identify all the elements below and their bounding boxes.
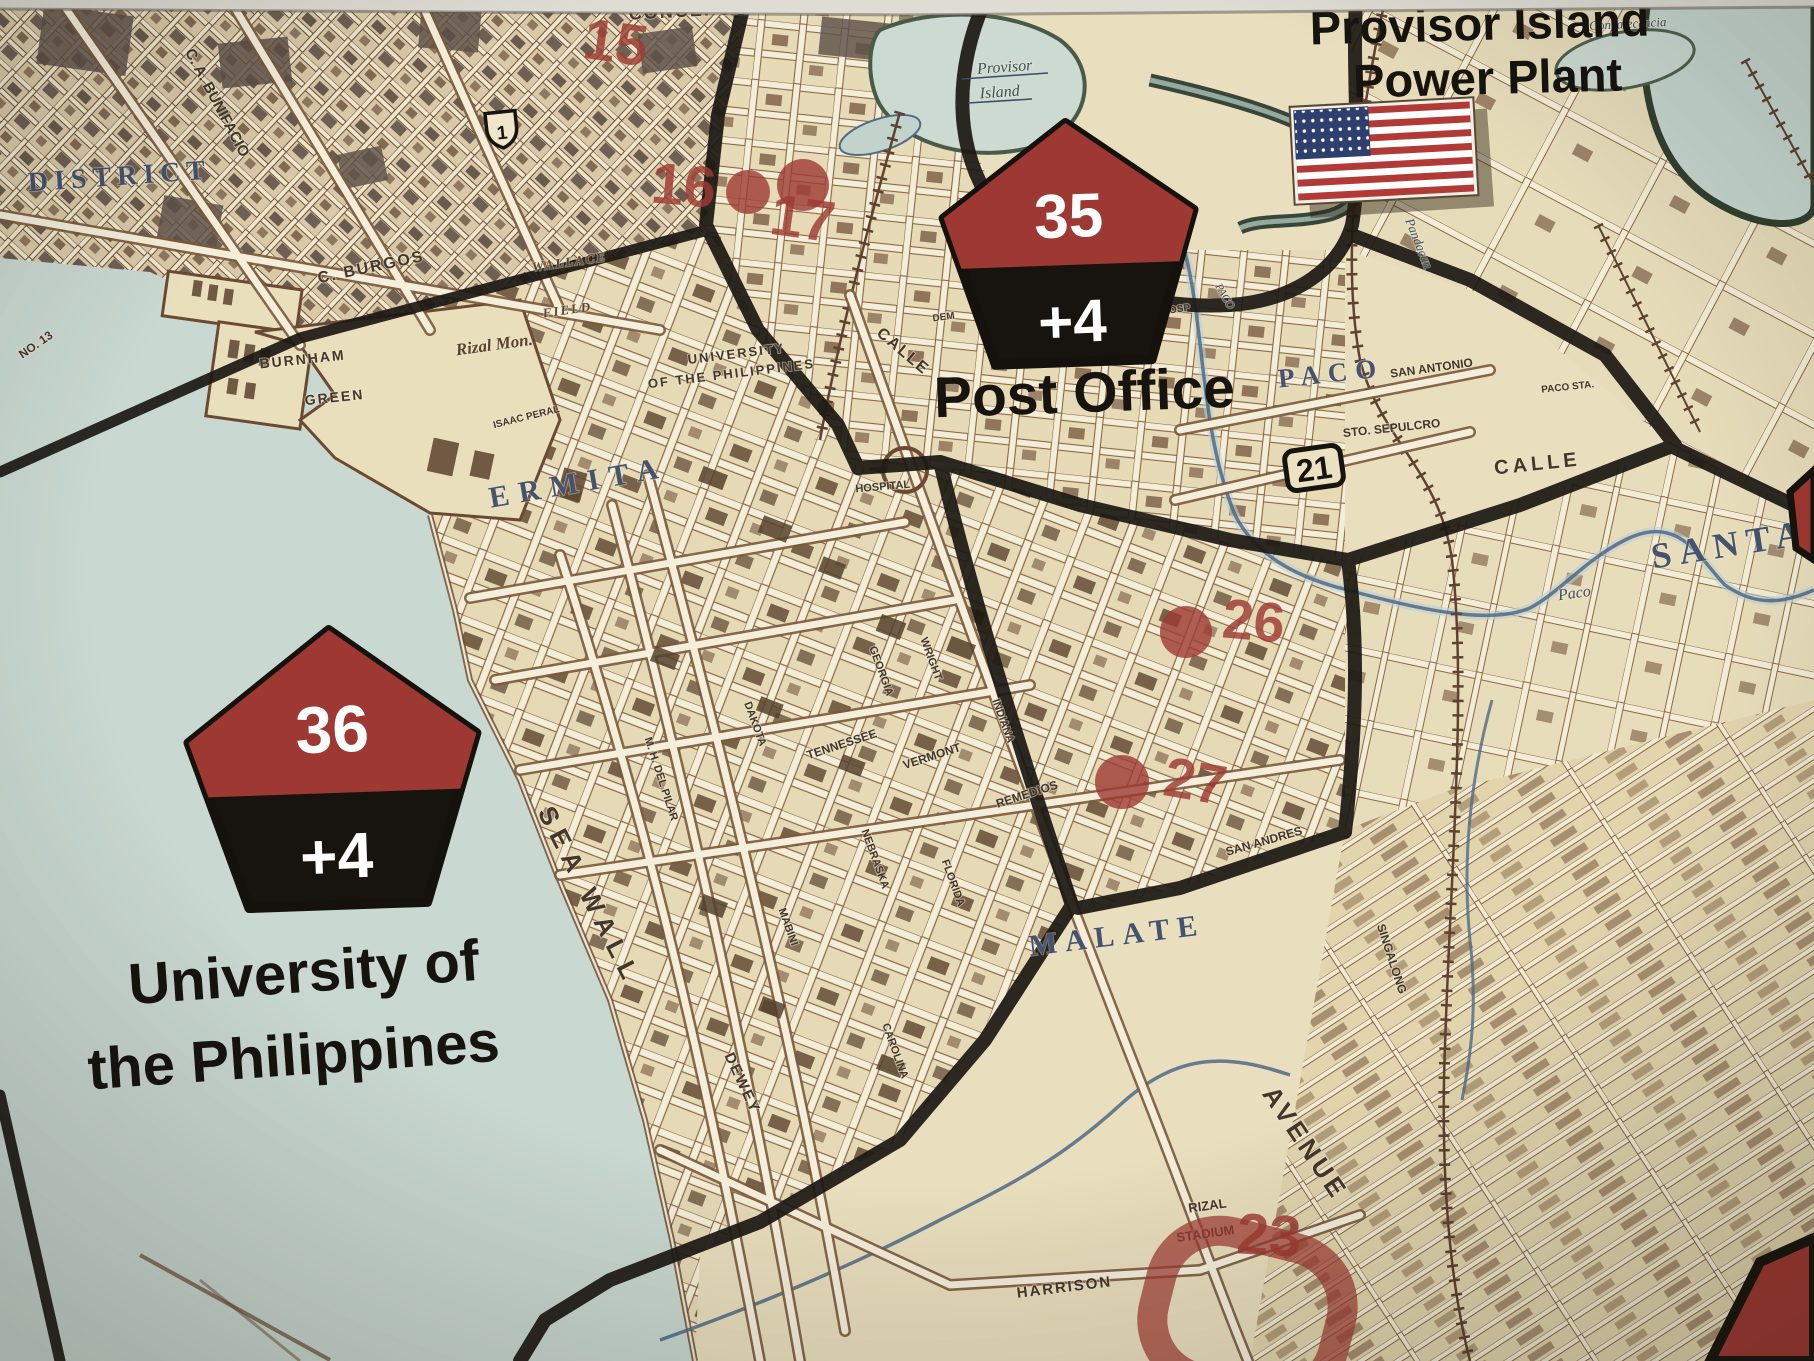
photo-vignette xyxy=(0,0,1814,1361)
manila-map: DISTRICT C. A. BUNIFACIO CONCEPCION C. B… xyxy=(0,0,1814,1361)
game-map-photo: DISTRICT C. A. BUNIFACIO CONCEPCION C. B… xyxy=(0,0,1814,1361)
